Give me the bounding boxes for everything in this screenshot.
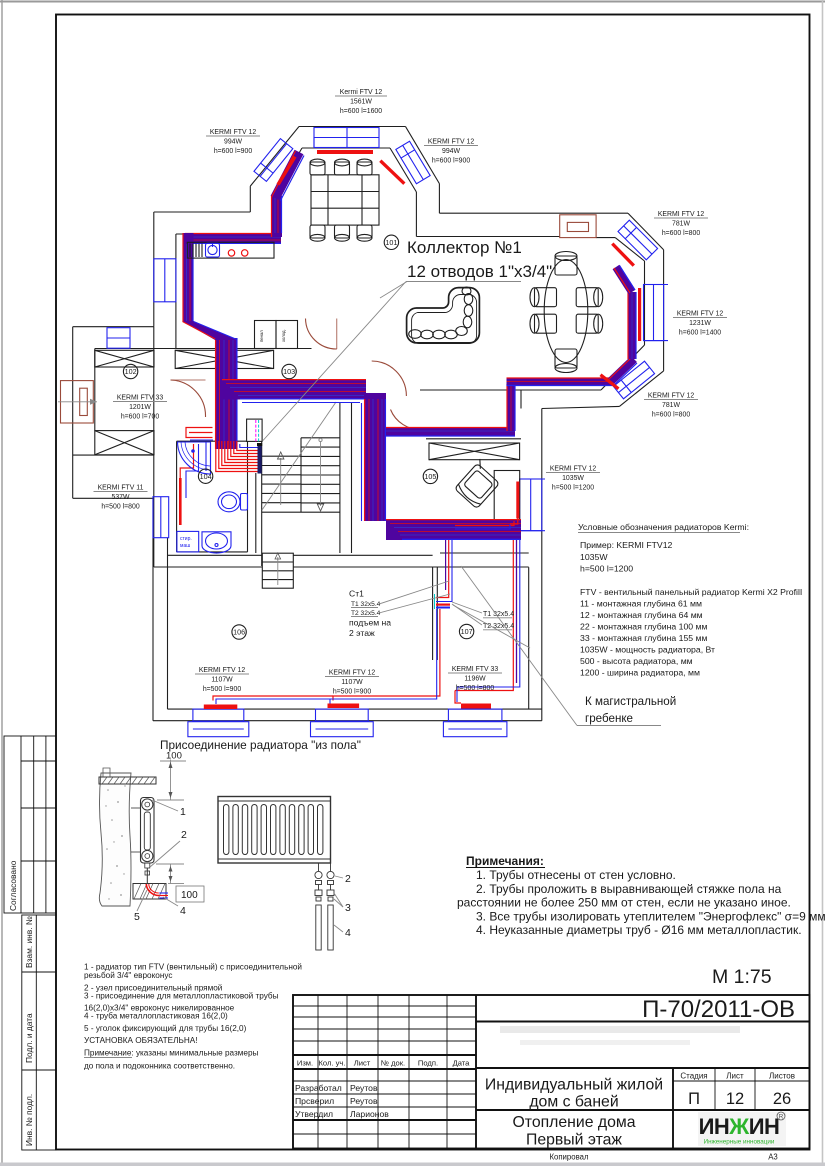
svg-text:П-70/2011-ОВ: П-70/2011-ОВ bbox=[642, 996, 795, 1023]
svg-text:Взам. инв. №: Взам. инв. № bbox=[24, 916, 34, 968]
svg-text:KERMI FTV 33: KERMI FTV 33 bbox=[117, 395, 163, 402]
svg-text:Коллектор №1: Коллектор №1 bbox=[407, 238, 522, 257]
svg-text:1196W: 1196W bbox=[464, 676, 486, 683]
svg-text:4: 4 bbox=[180, 905, 186, 917]
svg-text:100: 100 bbox=[181, 890, 198, 901]
svg-text:R: R bbox=[779, 1114, 784, 1121]
svg-text:2: 2 bbox=[345, 873, 351, 885]
svg-text:994W: 994W bbox=[224, 139, 242, 146]
svg-text:Дата: Дата bbox=[453, 1059, 471, 1068]
svg-text:стир.: стир. bbox=[180, 536, 192, 542]
svg-text:Листов: Листов bbox=[769, 1072, 795, 1081]
svg-text:22 - монтажная глубина 100 мм: 22 - монтажная глубина 100 мм bbox=[580, 622, 707, 632]
svg-text:26: 26 bbox=[773, 1090, 791, 1108]
svg-text:1. Трубы отнесены от стен усло: 1. Трубы отнесены от стен условно. bbox=[476, 868, 676, 882]
svg-text:KERMI FTV 12: KERMI FTV 12 bbox=[199, 667, 245, 674]
svg-text:Присоединение радиатора "из по: Присоединение радиатора "из пола" bbox=[160, 738, 361, 752]
svg-text:h=600 l=800: h=600 l=800 bbox=[662, 230, 700, 237]
svg-text:К магистральной: К магистральной bbox=[585, 695, 676, 708]
svg-text:KERMI FTV 12: KERMI FTV 12 bbox=[648, 393, 694, 400]
svg-text:Kermi FTV 12: Kermi FTV 12 bbox=[340, 89, 383, 96]
svg-text:106: 106 bbox=[233, 628, 245, 637]
svg-text:781W: 781W bbox=[662, 402, 680, 409]
svg-text:500 - высота радиатора, мм: 500 - высота радиатора, мм bbox=[580, 656, 693, 666]
svg-text:Кол. уч.: Кол. уч. bbox=[319, 1059, 346, 1068]
svg-text:1231W: 1231W bbox=[689, 320, 711, 327]
svg-text:1035W: 1035W bbox=[580, 552, 608, 562]
svg-text:Примечания:: Примечания: bbox=[466, 854, 544, 868]
svg-text:подъем на: подъем на bbox=[349, 618, 391, 628]
svg-text:107: 107 bbox=[461, 627, 473, 636]
svg-text:3: 3 bbox=[345, 902, 351, 914]
svg-text:Прсверил: Прсверил bbox=[295, 1096, 334, 1106]
svg-text:Подп.: Подп. bbox=[418, 1059, 438, 1068]
svg-text:Индивидуальный жилой: Индивидуальный жилой bbox=[485, 1077, 663, 1094]
svg-text:4: 4 bbox=[345, 927, 351, 939]
svg-text:Изм.: Изм. bbox=[297, 1059, 313, 1068]
svg-text:ИНЖИН: ИНЖИН bbox=[699, 1114, 780, 1139]
svg-text:Условные обозначения радиаторо: Условные обозначения радиаторов Kermi: bbox=[578, 522, 749, 532]
svg-text:h=500 l=1200: h=500 l=1200 bbox=[580, 564, 633, 574]
svg-text:до пола и подоконника соответс: до пола и подоконника соответственно. bbox=[84, 1062, 235, 1071]
svg-text:12 - монтажная глубина 64 мм: 12 - монтажная глубина 64 мм bbox=[580, 610, 703, 620]
svg-text:5: 5 bbox=[134, 911, 140, 923]
svg-text:105: 105 bbox=[424, 472, 436, 481]
svg-text:3 - присоединение для металлоп: 3 - присоединение для металлопластиковой… bbox=[84, 992, 279, 1001]
svg-text:KERMI FTV 12: KERMI FTV 12 bbox=[658, 211, 704, 218]
svg-text:5 - уголок фиксирующий для тру: 5 - уголок фиксирующий для трубы 16(2,0) bbox=[84, 1024, 247, 1033]
svg-text:103: 103 bbox=[283, 367, 295, 376]
svg-text:h=500 l=900: h=500 l=900 bbox=[333, 689, 371, 696]
svg-text:FTV - вентильный панельный рад: FTV - вентильный панельный радиатор Kerm… bbox=[580, 587, 802, 597]
svg-text:дом с баней: дом с баней bbox=[529, 1094, 618, 1111]
svg-text:33 - монтажная глубина 155 мм: 33 - монтажная глубина 155 мм bbox=[580, 633, 707, 643]
svg-text:расстоянии не более 250 мм от: расстоянии не более 250 мм от стен, если… bbox=[457, 896, 791, 910]
svg-text:Отопление дома: Отопление дома bbox=[512, 1114, 635, 1131]
svg-text:h=600 l=1600: h=600 l=1600 bbox=[340, 108, 382, 115]
svg-text:1201W: 1201W bbox=[129, 404, 151, 411]
svg-text:KERMI FTV 11: KERMI FTV 11 bbox=[98, 485, 144, 492]
svg-text:11 - монтажная глубина 61 мм: 11 - монтажная глубина 61 мм bbox=[580, 599, 702, 609]
svg-text:маш: маш bbox=[180, 543, 190, 549]
svg-text:Согласовано: Согласовано bbox=[8, 860, 18, 911]
svg-text:h=500 l=1200: h=500 l=1200 bbox=[552, 485, 594, 492]
svg-text:KERMI FTV 12: KERMI FTV 12 bbox=[550, 466, 596, 473]
svg-text:2: 2 bbox=[181, 829, 187, 841]
svg-text:резьбой 3/4" евроконус: резьбой 3/4" евроконус bbox=[84, 971, 172, 980]
svg-text:Утвердил: Утвердил bbox=[295, 1109, 333, 1119]
svg-text:УСТАНОВКА ОБЯЗАТЕЛЬНА!: УСТАНОВКА ОБЯЗАТЕЛЬНА! bbox=[84, 1036, 197, 1045]
svg-text:h=600 l=1400: h=600 l=1400 bbox=[679, 330, 721, 337]
svg-text:102: 102 bbox=[125, 367, 137, 376]
svg-text:Стадия: Стадия bbox=[680, 1072, 707, 1081]
svg-text:1035W: 1035W bbox=[562, 475, 584, 482]
svg-text:KERMI FTV 12: KERMI FTV 12 bbox=[428, 139, 474, 146]
svg-text:h=600 l=900: h=600 l=900 bbox=[432, 158, 470, 165]
svg-text:Пример: KERMI FTV12: Пример: KERMI FTV12 bbox=[580, 540, 673, 550]
svg-text:781W: 781W bbox=[672, 221, 690, 228]
svg-text:П: П bbox=[688, 1090, 700, 1108]
svg-text:KERMI FTV 33: KERMI FTV 33 bbox=[452, 666, 498, 673]
svg-text:Подл. и дата: Подл. и дата bbox=[24, 1013, 34, 1063]
svg-text:537W: 537W bbox=[111, 494, 129, 501]
svg-text:Лист: Лист bbox=[354, 1059, 371, 1068]
svg-text:№ док.: № док. bbox=[381, 1059, 405, 1068]
svg-text:Примечание: указаны минимальны: Примечание: указаны минимальные размеры bbox=[84, 1049, 259, 1058]
svg-text:h=500 l=800: h=500 l=800 bbox=[101, 504, 139, 511]
svg-text:KERMI FTV 12: KERMI FTV 12 bbox=[677, 311, 723, 318]
svg-text:3. Все трубы изолировать утепл: 3. Все трубы изолировать утеплителем "Эн… bbox=[476, 909, 825, 923]
svg-text:1035W - мощность радиатора, Вт: 1035W - мощность радиатора, Вт bbox=[580, 645, 715, 655]
svg-text:994W: 994W bbox=[442, 148, 460, 155]
svg-text:h=600 l=800: h=600 l=800 bbox=[652, 412, 690, 419]
svg-text:Разработал: Разработал bbox=[295, 1083, 342, 1093]
svg-text:101: 101 bbox=[385, 238, 397, 247]
svg-text:1561W: 1561W bbox=[350, 99, 372, 106]
svg-text:А3: А3 bbox=[768, 1153, 778, 1162]
svg-text:1107W: 1107W bbox=[211, 677, 233, 684]
svg-text:h=600 l=900: h=600 l=900 bbox=[214, 148, 252, 155]
svg-text:12 отводов 1"х3/4": 12 отводов 1"х3/4" bbox=[407, 262, 552, 281]
svg-text:1200 - ширина радиатора, мм: 1200 - ширина радиатора, мм bbox=[580, 668, 700, 678]
svg-text:Т2 32х5.4: Т2 32х5.4 bbox=[351, 610, 381, 617]
svg-text:4 - труба металлопластиковая 1: 4 - труба металлопластиковая 16(2,0) bbox=[84, 1012, 228, 1021]
svg-text:Т1 32х5.4: Т1 32х5.4 bbox=[483, 611, 514, 618]
svg-text:Реутов: Реутов bbox=[350, 1096, 378, 1106]
svg-text:Инженерные инновации: Инженерные инновации bbox=[704, 1139, 775, 1146]
svg-text:KERMI FTV 12: KERMI FTV 12 bbox=[329, 670, 375, 677]
svg-text:Лист: Лист bbox=[726, 1072, 744, 1081]
svg-text:М 1:75: М 1:75 bbox=[712, 966, 772, 988]
svg-text:h=500 l=900: h=500 l=900 bbox=[203, 686, 241, 693]
svg-text:2. Трубы проложить в выравнива: 2. Трубы проложить в выравнивающей стяжк… bbox=[476, 882, 782, 896]
svg-text:пенал: пенал bbox=[259, 330, 264, 342]
svg-text:Т1 32х5.4: Т1 32х5.4 bbox=[351, 601, 381, 608]
svg-text:104: 104 bbox=[200, 472, 212, 481]
svg-text:холод.: холод. bbox=[281, 329, 286, 342]
svg-text:100: 100 bbox=[166, 751, 182, 762]
svg-text:Реутов: Реутов bbox=[350, 1083, 378, 1093]
svg-text:1107W: 1107W bbox=[341, 679, 363, 686]
svg-text:Копировал: Копировал bbox=[549, 1153, 589, 1162]
svg-text:1: 1 bbox=[180, 806, 186, 818]
svg-text:Инв. № подл.: Инв. № подл. bbox=[24, 1094, 34, 1146]
svg-text:Ларионов: Ларионов bbox=[350, 1109, 389, 1119]
svg-text:h=500 l=800: h=500 l=800 bbox=[456, 685, 494, 692]
svg-text:Ст1: Ст1 bbox=[349, 589, 364, 599]
svg-text:Первый этаж: Первый этаж bbox=[526, 1132, 622, 1149]
svg-text:2 этаж: 2 этаж bbox=[349, 628, 375, 638]
svg-text:h=600 l=700: h=600 l=700 bbox=[121, 414, 159, 421]
svg-text:KERMI FTV 12: KERMI FTV 12 bbox=[210, 129, 256, 136]
svg-text:гребенке: гребенке bbox=[585, 712, 633, 725]
svg-text:4. Неуказанные диаметры труб -: 4. Неуказанные диаметры труб - Ø16 мм ме… bbox=[476, 923, 802, 937]
svg-text:12: 12 bbox=[726, 1090, 744, 1108]
